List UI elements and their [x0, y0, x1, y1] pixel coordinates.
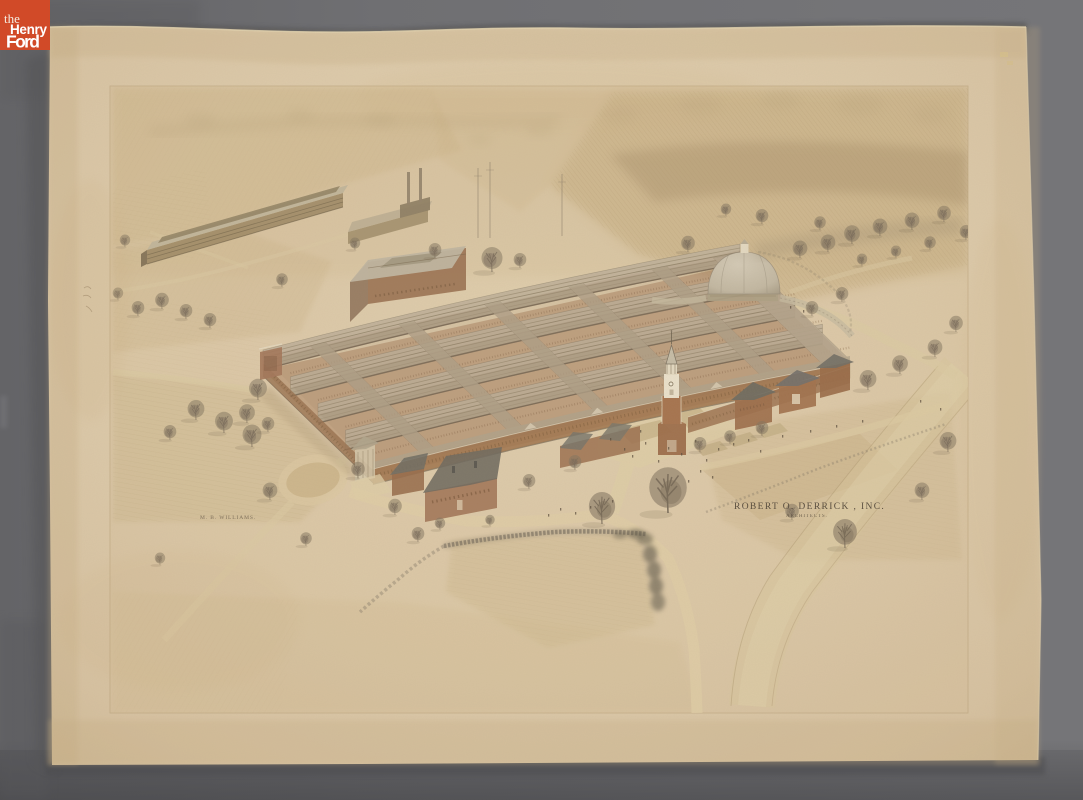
svg-text:Ford: Ford [6, 32, 40, 52]
